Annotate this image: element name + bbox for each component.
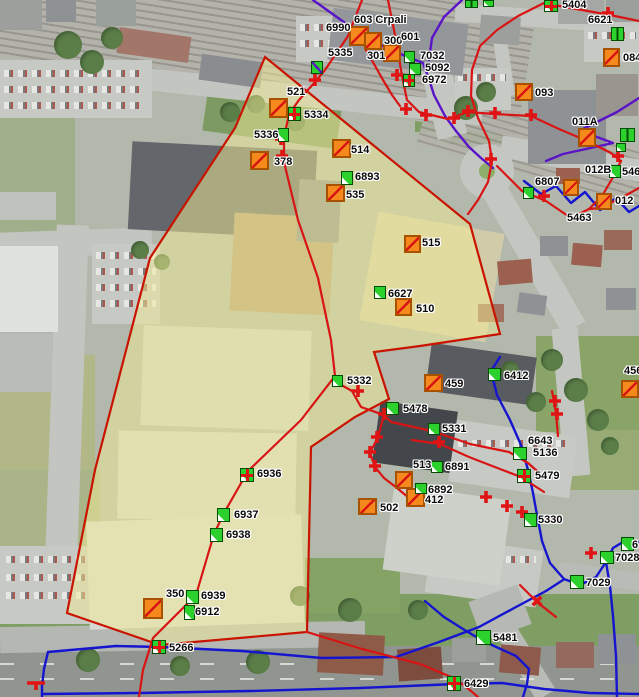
green-point-marker-6807[interactable] <box>523 187 534 199</box>
orange-feature-marker-6807[interactable] <box>563 179 579 196</box>
orange-feature-marker-513[interactable] <box>395 471 413 489</box>
orange-feature-marker-456[interactable] <box>621 380 639 398</box>
green-point-marker-5336[interactable] <box>278 128 289 142</box>
orange-feature-marker-502[interactable] <box>358 498 377 515</box>
orange-feature-marker-510[interactable] <box>395 298 412 316</box>
green-point-marker-5136[interactable] <box>513 447 527 460</box>
green-point-marker-5331[interactable] <box>428 423 440 435</box>
green-point-marker-5478[interactable] <box>386 402 399 415</box>
green-point-marker-6939[interactable] <box>186 590 199 604</box>
point-markers-layer <box>0 0 639 697</box>
orange-feature-marker-301[interactable] <box>383 44 401 62</box>
orange-feature-marker-459[interactable] <box>424 374 443 392</box>
orange-feature-marker-5334[interactable] <box>269 98 288 118</box>
green-point-marker-5404[interactable] <box>544 0 558 12</box>
green-point-marker-5266[interactable] <box>152 640 166 654</box>
green-point-marker-7029[interactable] <box>570 575 584 589</box>
green-point-marker-5334[interactable] <box>288 107 301 121</box>
orange-feature-marker-514[interactable] <box>332 139 351 158</box>
green-point-marker-6412[interactable] <box>488 368 501 381</box>
green-point-marker-7032[interactable] <box>404 51 415 63</box>
green-point-marker-6[interactable] <box>621 537 634 551</box>
green-point-marker-6627[interactable] <box>374 286 386 299</box>
orange-feature-marker-300[interactable] <box>364 32 382 50</box>
green-point-marker-6891[interactable] <box>431 461 443 473</box>
green-point-marker-6621[interactable] <box>611 27 624 41</box>
green-point-marker-5330[interactable] <box>524 513 537 527</box>
map-viewport[interactable]: 603 Crpali699030060130153357032509269725… <box>0 0 639 697</box>
green-point-marker-5481[interactable] <box>476 630 491 645</box>
green-point-marker-011A[interactable] <box>620 128 635 142</box>
green-point-marker-6429[interactable] <box>447 676 461 691</box>
orange-feature-marker-6912[interactable] <box>143 598 163 619</box>
orange-feature-marker-093[interactable] <box>515 83 533 101</box>
green-point-marker-6937[interactable] <box>217 508 230 522</box>
orange-feature-marker-011A[interactable] <box>578 128 596 147</box>
green-point-marker-unlabeled[interactable] <box>616 143 626 152</box>
green-point-marker-7028[interactable] <box>600 551 614 564</box>
green-point-marker-5332[interactable] <box>332 375 343 387</box>
green-point-marker-6936[interactable] <box>240 468 254 482</box>
green-point-marker-6972[interactable] <box>403 74 415 87</box>
green-point-marker-5479[interactable] <box>517 469 531 483</box>
green-point-marker-6912[interactable] <box>184 605 195 620</box>
orange-feature-marker-535[interactable] <box>326 184 345 202</box>
orange-feature-marker-515[interactable] <box>404 235 421 253</box>
green-point-marker-6938[interactable] <box>210 528 223 542</box>
green-point-marker-5335[interactable] <box>311 61 323 74</box>
orange-feature-marker-378[interactable] <box>250 151 269 170</box>
orange-feature-marker-084[interactable] <box>603 48 620 67</box>
green-point-marker-6892[interactable] <box>415 483 427 494</box>
green-point-marker-6893[interactable] <box>341 171 353 185</box>
green-point-marker-unlabeled[interactable] <box>483 0 494 7</box>
green-point-marker-unlabeled[interactable] <box>465 0 478 8</box>
orange-feature-marker-012[interactable] <box>596 193 612 210</box>
green-point-marker-012B[interactable] <box>609 165 621 178</box>
